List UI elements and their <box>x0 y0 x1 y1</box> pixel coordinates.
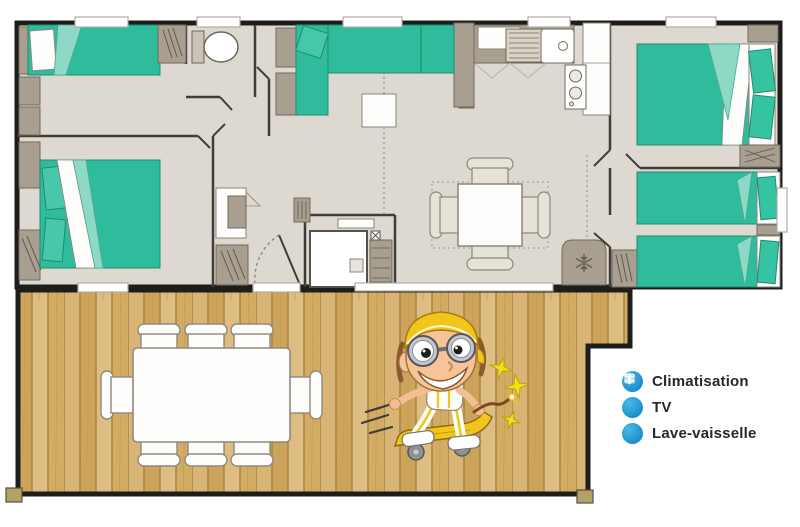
pillow <box>749 49 776 93</box>
amenities-legend: Climatisation TV Lave-vaisselle <box>622 371 757 444</box>
sofa <box>328 25 454 73</box>
shower-drain <box>350 259 363 272</box>
mobile-home-plan <box>17 17 787 292</box>
pillow <box>757 240 779 283</box>
floorplan-illustration <box>0 0 800 527</box>
deck-post-left <box>6 488 22 502</box>
pillow <box>30 29 57 71</box>
floorplan-page: Climatisation TV Lave-vaisselle <box>0 0 800 527</box>
legend-label: Lave-vaisselle <box>652 423 757 444</box>
dishwasher-icon <box>622 423 643 444</box>
drainer <box>506 29 542 62</box>
dining-table <box>458 184 522 246</box>
coffee-table <box>362 94 396 127</box>
pillow <box>757 176 779 219</box>
toilet <box>204 32 238 62</box>
tv-icon <box>622 397 643 418</box>
deck-post-right <box>577 490 593 503</box>
toilet-tank <box>192 31 204 63</box>
kitchen-sink <box>541 29 574 63</box>
deck-table <box>133 348 290 442</box>
legend-label: TV <box>652 397 672 418</box>
deck <box>6 290 630 503</box>
wc-room <box>192 31 238 63</box>
legend-item-tv: TV <box>622 397 757 418</box>
legend-item-climatisation: Climatisation <box>622 371 757 392</box>
pillow <box>749 95 775 139</box>
bedroom-double-left <box>19 142 160 280</box>
washbasin <box>338 219 374 228</box>
legend-label: Climatisation <box>652 371 749 392</box>
legend-item-lave-vaisselle: Lave-vaisselle <box>622 423 757 444</box>
pillow <box>42 218 66 262</box>
